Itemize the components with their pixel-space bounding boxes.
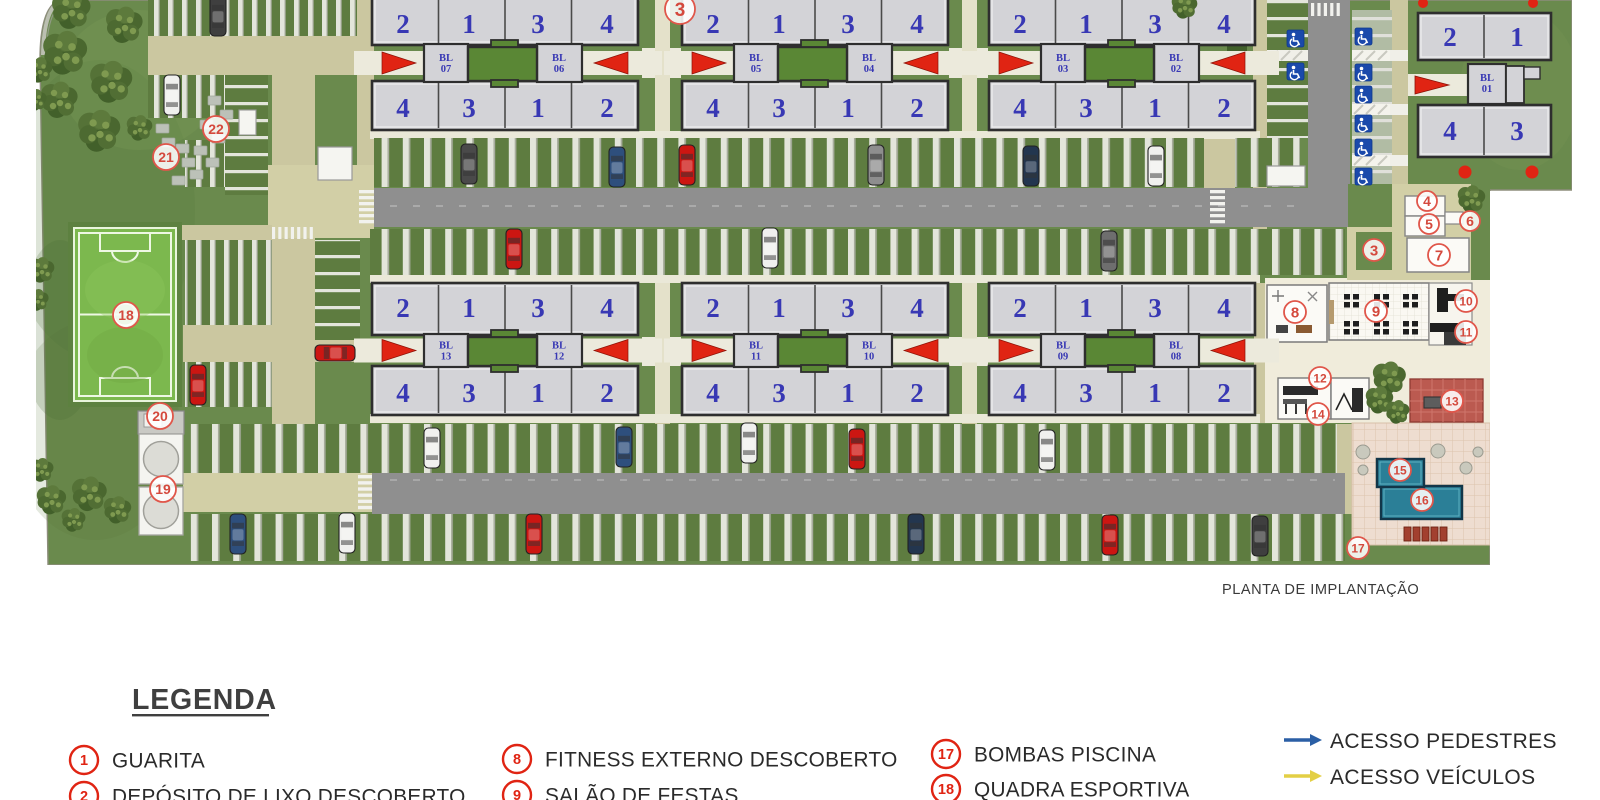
svg-text:4: 4	[1423, 193, 1431, 209]
svg-text:13: 13	[1445, 394, 1459, 408]
svg-text:17: 17	[938, 747, 954, 763]
svg-text:2: 2	[600, 378, 614, 408]
svg-text:4: 4	[1443, 116, 1457, 146]
svg-text:12: 12	[1313, 371, 1327, 385]
svg-text:4: 4	[1217, 293, 1231, 323]
svg-text:2: 2	[80, 789, 88, 800]
svg-text:BL: BL	[552, 53, 566, 64]
svg-text:1: 1	[841, 93, 855, 123]
svg-text:1: 1	[462, 293, 476, 323]
svg-text:9: 9	[1372, 303, 1380, 320]
svg-text:4: 4	[1013, 378, 1027, 408]
svg-text:3: 3	[841, 293, 855, 323]
svg-text:ACESSO PEDESTRES: ACESSO PEDESTRES	[1330, 730, 1557, 753]
svg-text:1: 1	[1079, 293, 1093, 323]
svg-text:ACESSO VEÍCULOS: ACESSO VEÍCULOS	[1330, 766, 1536, 789]
svg-text:BL: BL	[1056, 53, 1070, 64]
svg-text:BL: BL	[439, 341, 453, 352]
svg-text:07: 07	[441, 64, 452, 75]
svg-text:08: 08	[1171, 352, 1182, 363]
svg-text:1: 1	[1148, 378, 1162, 408]
svg-text:05: 05	[751, 64, 762, 75]
svg-text:1: 1	[841, 378, 855, 408]
svg-text:BL: BL	[862, 53, 876, 64]
svg-text:03: 03	[1058, 64, 1069, 75]
svg-text:1: 1	[80, 753, 88, 769]
svg-text:3: 3	[1510, 116, 1524, 146]
svg-text:9: 9	[513, 788, 521, 800]
svg-text:15: 15	[1393, 463, 1407, 477]
svg-text:BL: BL	[749, 341, 763, 352]
svg-text:QUADRA ESPORTIVA: QUADRA ESPORTIVA	[974, 779, 1190, 800]
svg-text:1: 1	[772, 9, 786, 39]
svg-text:BL: BL	[552, 341, 566, 352]
svg-text:BL: BL	[1169, 53, 1183, 64]
svg-text:3: 3	[531, 293, 545, 323]
svg-text:FITNESS EXTERNO DESCOBERTO: FITNESS EXTERNO DESCOBERTO	[545, 749, 898, 772]
svg-text:22: 22	[208, 121, 224, 137]
svg-text:DEPÓSITO DE LIXO DESCOBERTO: DEPÓSITO DE LIXO DESCOBERTO	[112, 786, 466, 800]
svg-text:3: 3	[1370, 242, 1378, 259]
svg-text:4: 4	[910, 9, 924, 39]
svg-text:2: 2	[910, 378, 924, 408]
svg-text:8: 8	[513, 752, 521, 768]
svg-text:14: 14	[1311, 407, 1325, 421]
svg-text:SALÃO DE FESTAS: SALÃO DE FESTAS	[545, 784, 739, 800]
svg-text:2: 2	[1013, 9, 1027, 39]
svg-text:19: 19	[155, 481, 171, 497]
svg-text:BL: BL	[749, 53, 763, 64]
svg-text:BL: BL	[1480, 73, 1494, 84]
svg-text:10: 10	[864, 352, 875, 363]
svg-text:7: 7	[1435, 247, 1443, 264]
svg-text:3: 3	[841, 9, 855, 39]
svg-text:1: 1	[462, 9, 476, 39]
svg-text:4: 4	[1013, 93, 1027, 123]
svg-text:1: 1	[1510, 22, 1524, 52]
svg-text:3: 3	[772, 378, 786, 408]
svg-text:11: 11	[1460, 325, 1473, 339]
svg-text:BL: BL	[439, 53, 453, 64]
svg-text:LEGENDA: LEGENDA	[132, 684, 277, 716]
svg-text:2: 2	[1013, 293, 1027, 323]
svg-text:1: 1	[1148, 93, 1162, 123]
svg-text:2: 2	[1217, 93, 1231, 123]
svg-text:12: 12	[554, 352, 565, 363]
svg-text:1: 1	[1079, 9, 1093, 39]
svg-text:3: 3	[531, 9, 545, 39]
svg-text:4: 4	[706, 93, 720, 123]
svg-text:4: 4	[706, 378, 720, 408]
svg-text:16: 16	[1415, 493, 1429, 507]
svg-text:2: 2	[910, 93, 924, 123]
svg-text:3: 3	[1148, 293, 1162, 323]
svg-text:11: 11	[751, 352, 761, 363]
svg-text:3: 3	[772, 93, 786, 123]
svg-text:3: 3	[675, 0, 686, 21]
svg-text:09: 09	[1058, 352, 1069, 363]
svg-text:02: 02	[1171, 64, 1182, 75]
svg-text:1: 1	[531, 93, 545, 123]
svg-text:BL: BL	[1056, 341, 1070, 352]
svg-text:3: 3	[1079, 378, 1093, 408]
svg-text:4: 4	[396, 93, 410, 123]
svg-text:BOMBAS PISCINA: BOMBAS PISCINA	[974, 744, 1156, 767]
svg-text:20: 20	[152, 408, 168, 424]
svg-text:2: 2	[1217, 378, 1231, 408]
svg-text:2: 2	[706, 9, 720, 39]
svg-text:3: 3	[462, 93, 476, 123]
svg-text:2: 2	[396, 9, 410, 39]
svg-text:13: 13	[441, 352, 452, 363]
svg-text:18: 18	[118, 307, 134, 323]
svg-text:6: 6	[1466, 213, 1474, 229]
svg-text:21: 21	[158, 149, 174, 165]
svg-text:PLANTA DE IMPLANTAÇÃO: PLANTA DE IMPLANTAÇÃO	[1222, 581, 1419, 598]
svg-text:BL: BL	[1169, 341, 1183, 352]
svg-text:2: 2	[706, 293, 720, 323]
svg-text:GUARITA: GUARITA	[112, 750, 205, 773]
svg-text:4: 4	[600, 293, 614, 323]
svg-text:2: 2	[1443, 22, 1457, 52]
svg-text:1: 1	[531, 378, 545, 408]
svg-text:BL: BL	[862, 341, 876, 352]
svg-text:4: 4	[600, 9, 614, 39]
svg-text:3: 3	[1079, 93, 1093, 123]
svg-text:01: 01	[1482, 84, 1493, 95]
svg-text:4: 4	[396, 378, 410, 408]
svg-text:3: 3	[1148, 9, 1162, 39]
svg-text:8: 8	[1291, 304, 1299, 321]
svg-text:4: 4	[910, 293, 924, 323]
svg-text:2: 2	[396, 293, 410, 323]
svg-text:18: 18	[938, 782, 954, 798]
svg-text:04: 04	[864, 64, 875, 75]
svg-text:4: 4	[1217, 9, 1231, 39]
svg-text:2: 2	[600, 93, 614, 123]
svg-text:10: 10	[1459, 294, 1473, 308]
svg-text:06: 06	[554, 64, 565, 75]
svg-text:17: 17	[1351, 541, 1365, 555]
svg-text:5: 5	[1425, 216, 1433, 232]
svg-text:3: 3	[462, 378, 476, 408]
svg-text:1: 1	[772, 293, 786, 323]
